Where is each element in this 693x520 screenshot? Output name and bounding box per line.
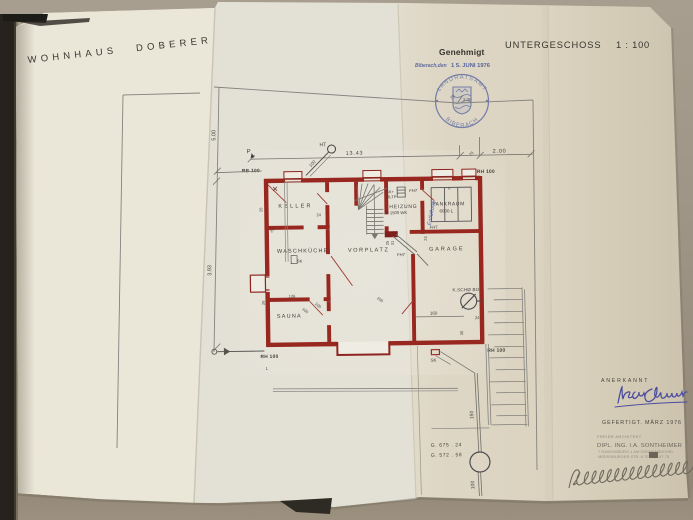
svg-text:ÖLTP: ÖLTP [386, 194, 397, 199]
svg-text:150: 150 [469, 411, 475, 420]
svg-text:FHT: FHT [397, 252, 406, 257]
svg-text:DIPL. ING. I.A. SONTHEIMER: DIPL. ING. I.A. SONTHEIMER [597, 443, 682, 449]
svg-text:VORPLATZ: VORPLATZ [348, 247, 390, 254]
svg-text:Biberach,den: Biberach,den [415, 63, 447, 69]
svg-text:Ö 1500 WK: Ö 1500 WK [385, 210, 407, 215]
svg-text:2.00: 2.00 [493, 149, 507, 155]
svg-text:KELLER: KELLER [278, 203, 312, 209]
svg-text:1 : 100: 1 : 100 [616, 40, 650, 50]
svg-text:5.00: 5.00 [211, 130, 217, 141]
svg-text:G. 675 . 24: G. 675 . 24 [431, 442, 462, 448]
svg-text:UNTERGESCHOSS: UNTERGESCHOSS [505, 40, 601, 50]
svg-text:FHT: FHT [409, 188, 418, 193]
svg-text:160: 160 [430, 311, 438, 316]
svg-text:GARAGE: GARAGE [429, 246, 465, 252]
svg-text:P: P [247, 149, 251, 155]
svg-text:Genehmigt: Genehmigt [439, 47, 485, 57]
svg-text:6000 L: 6000 L [439, 208, 453, 213]
svg-text:RH 100: RH 100 [487, 348, 505, 354]
svg-text:FREIER ARCHITEKT: FREIER ARCHITEKT [597, 434, 642, 439]
svg-text:HT: HT [319, 142, 326, 148]
svg-text:GEFERTIGT. MÄRZ 1976: GEFERTIGT. MÄRZ 1976 [602, 419, 682, 426]
svg-text:13.43: 13.43 [346, 151, 364, 157]
svg-text:3.00: 3.00 [463, 97, 472, 102]
svg-text:WASCHKÜCHE: WASCHKÜCHE [277, 247, 329, 255]
svg-text:K.SCHØ BO: K.SCHØ BO [453, 287, 480, 292]
svg-text:G. 572 . 58: G. 572 . 58 [431, 452, 462, 458]
svg-text:SK: SK [430, 358, 436, 363]
svg-text:MEERSBURGER STR. 8 TEL. 23 6: MEERSBURGER STR. 8 TEL. 23 67 75 [598, 454, 670, 459]
svg-text:100: 100 [470, 481, 476, 490]
svg-text:RH 100: RH 100 [260, 354, 278, 360]
svg-text:1 5. JUNI 1976: 1 5. JUNI 1976 [451, 63, 491, 69]
svg-text:SK: SK [297, 258, 303, 263]
svg-text:126: 126 [289, 294, 297, 299]
svg-text:SAUNA: SAUNA [277, 313, 302, 319]
svg-text:ANERKANNT: ANERKANNT [601, 378, 649, 384]
svg-text:RH 100: RH 100 [477, 169, 495, 175]
svg-text:3.93: 3.93 [207, 265, 213, 276]
